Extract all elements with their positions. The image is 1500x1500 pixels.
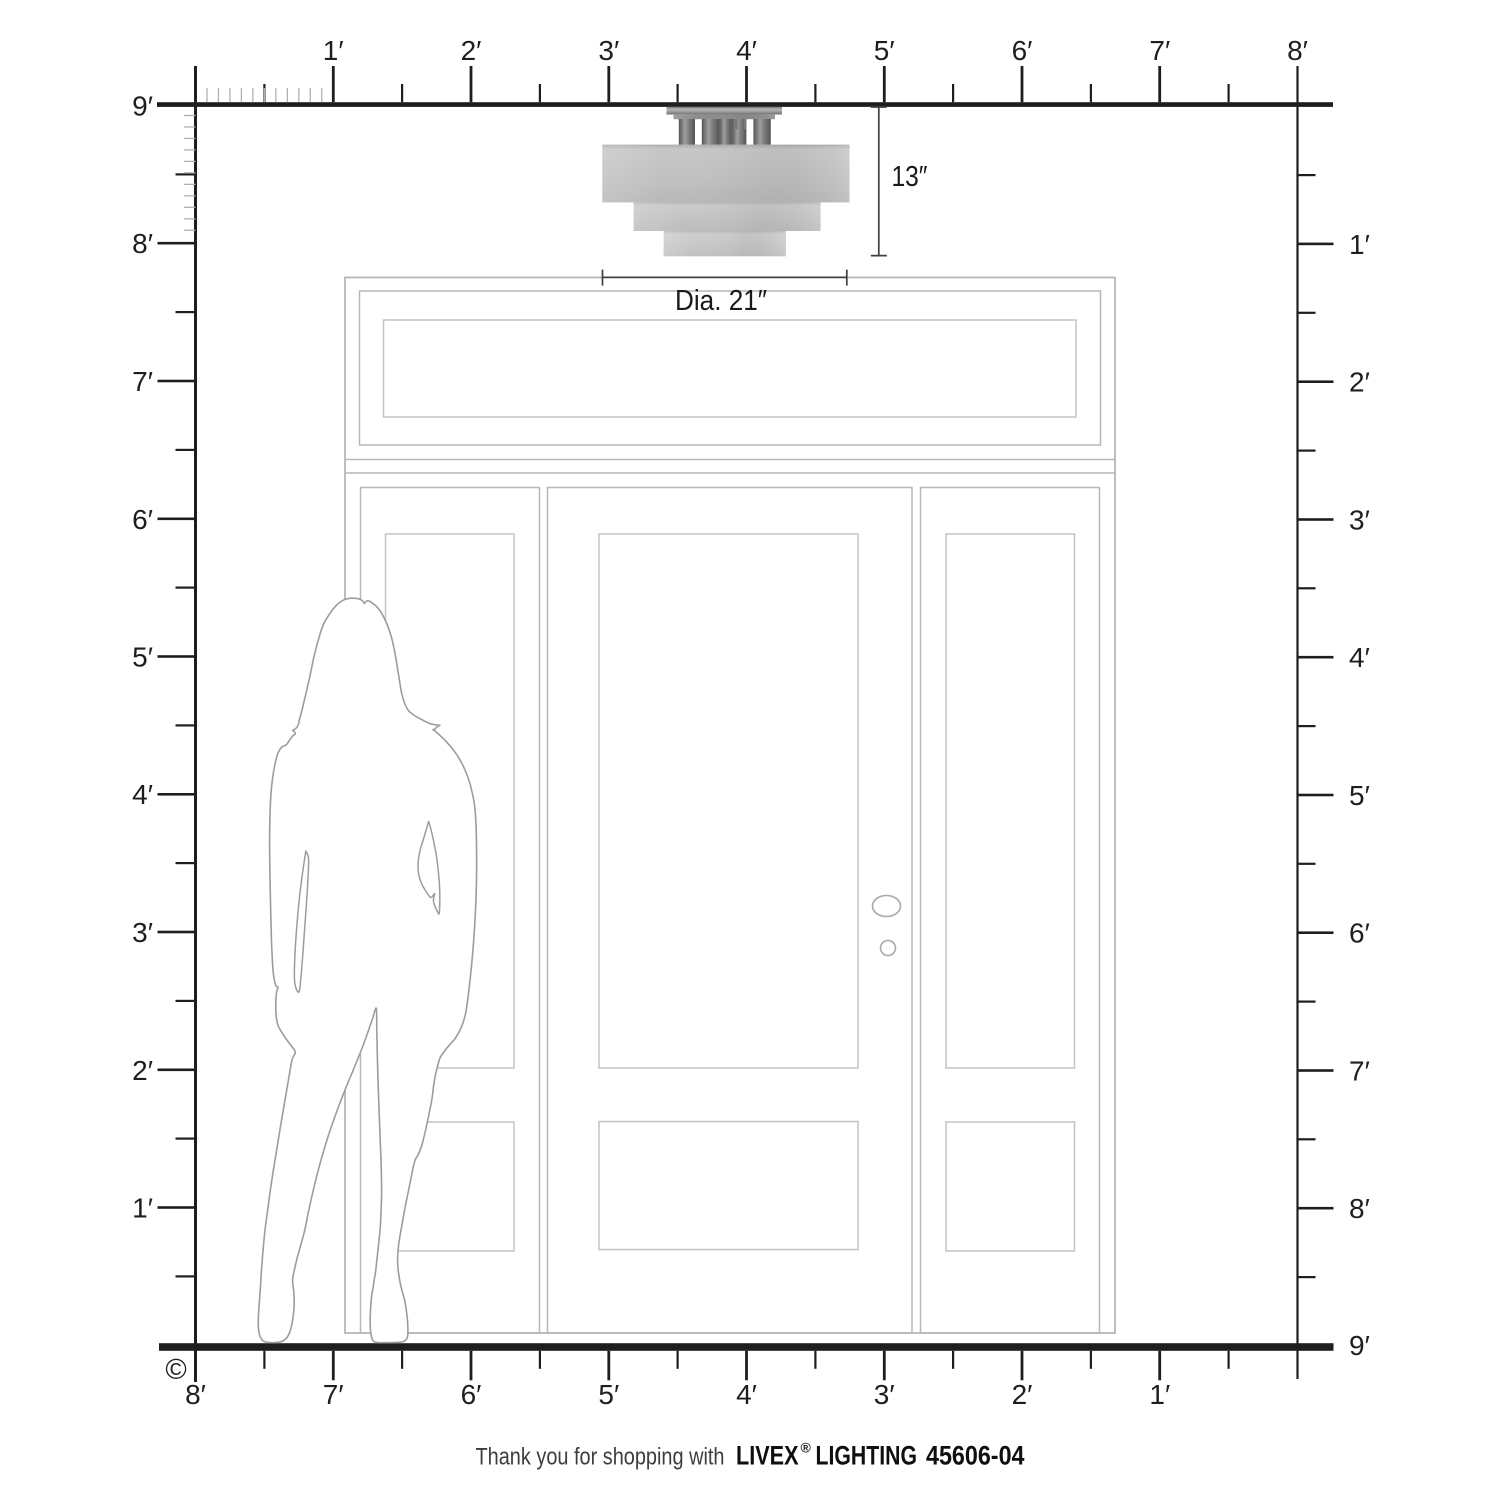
svg-text:4′: 4′: [132, 779, 153, 810]
svg-text:8′: 8′: [132, 228, 153, 259]
svg-text:4′: 4′: [736, 1379, 757, 1410]
svg-text:8′: 8′: [1287, 35, 1308, 66]
svg-text:5′: 5′: [132, 642, 153, 673]
svg-text:5′: 5′: [1349, 780, 1370, 811]
svg-text:2′: 2′: [132, 1055, 153, 1086]
svg-text:2′: 2′: [1012, 1379, 1033, 1410]
svg-text:Thank you for shopping withLIV: Thank you for shopping withLIVEX®LIGHTIN…: [476, 1440, 1025, 1471]
svg-text:6′: 6′: [1012, 35, 1033, 66]
svg-text:3′: 3′: [1349, 505, 1370, 536]
svg-text:Dia. 21″: Dia. 21″: [675, 285, 767, 317]
svg-text:3′: 3′: [598, 35, 619, 66]
svg-text:©: ©: [165, 1354, 186, 1386]
svg-text:2′: 2′: [1349, 367, 1370, 398]
svg-text:3′: 3′: [132, 917, 153, 948]
svg-text:1′: 1′: [1149, 1379, 1170, 1410]
svg-text:7′: 7′: [323, 1379, 344, 1410]
svg-text:7′: 7′: [132, 366, 153, 397]
svg-text:3′: 3′: [874, 1379, 895, 1410]
svg-text:4′: 4′: [736, 35, 757, 66]
svg-text:8′: 8′: [185, 1379, 206, 1410]
svg-text:9′: 9′: [132, 91, 153, 122]
svg-text:1′: 1′: [323, 35, 344, 66]
svg-text:6′: 6′: [1349, 918, 1370, 949]
svg-text:5′: 5′: [874, 35, 895, 66]
svg-text:1′: 1′: [132, 1193, 153, 1224]
svg-text:6′: 6′: [461, 1379, 482, 1410]
svg-text:7′: 7′: [1149, 35, 1170, 66]
svg-text:1′: 1′: [1349, 229, 1370, 260]
svg-text:5′: 5′: [598, 1379, 619, 1410]
svg-text:8′: 8′: [1349, 1193, 1370, 1224]
svg-text:13″: 13″: [892, 161, 928, 193]
svg-text:6′: 6′: [132, 504, 153, 535]
svg-text:9′: 9′: [1349, 1330, 1370, 1361]
svg-text:2′: 2′: [461, 35, 482, 66]
svg-text:4′: 4′: [1349, 642, 1370, 673]
svg-text:7′: 7′: [1349, 1056, 1370, 1087]
